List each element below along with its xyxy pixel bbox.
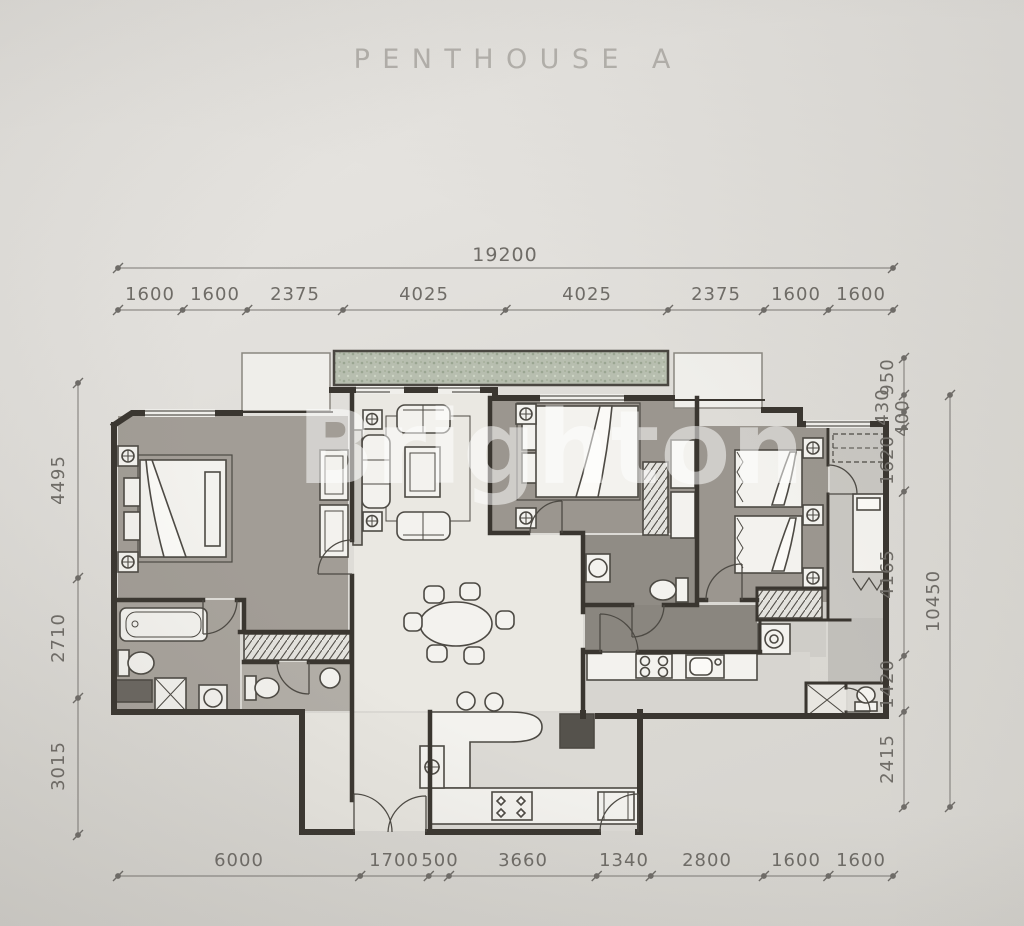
dim-label: 4025 xyxy=(399,284,449,305)
corridor-floor xyxy=(585,605,760,652)
tv-console-icon xyxy=(353,430,362,545)
twin-bed2-icon xyxy=(735,516,802,573)
window-icon xyxy=(806,420,870,428)
dim-label: 500 xyxy=(421,850,458,871)
dim-label-right-overall: 10450 xyxy=(923,570,944,632)
dim-label: 1600 xyxy=(771,284,821,305)
bedroom3-wardrobe-icon xyxy=(757,590,822,618)
bar-stool-icon xyxy=(485,693,503,711)
kitchen-counter-icon xyxy=(587,652,757,680)
dim-label: 1620 xyxy=(877,435,898,485)
toilet-icon xyxy=(650,578,688,602)
dim-label: 1600 xyxy=(771,850,821,871)
twin-bed1-icon xyxy=(735,450,802,507)
coffee-table-icon xyxy=(405,447,440,497)
window-icon xyxy=(145,409,215,417)
dim-label: 2375 xyxy=(691,284,741,305)
dim-label: 3660 xyxy=(498,850,548,871)
dining-table-icon xyxy=(420,602,492,646)
window-icon xyxy=(540,394,624,402)
dim-label: 4025 xyxy=(562,284,612,305)
dim-label: 4495 xyxy=(48,455,69,505)
dim-label: 2800 xyxy=(682,850,732,871)
dim-label-top-overall: 19200 xyxy=(472,244,537,266)
guest-toilet-icon xyxy=(245,676,279,700)
walkin-wardrobe-icon xyxy=(244,634,350,660)
bar-stool-icon xyxy=(457,692,475,710)
dim-label: 2415 xyxy=(877,734,898,784)
bedroom2-wardrobe-icon xyxy=(643,462,668,535)
bathtub-icon xyxy=(120,608,207,641)
ac-ledge-left xyxy=(242,353,330,411)
floor-plan-svg: 19200 1600 1600 2375 4025 4025 2375 1600… xyxy=(0,0,1024,926)
dim-label: 4165 xyxy=(877,549,898,599)
dim-label: 1600 xyxy=(836,850,886,871)
dim-label: 3015 xyxy=(48,741,69,791)
master-bed-icon xyxy=(124,455,232,562)
master-sink-icon xyxy=(199,685,227,711)
foyer-floor xyxy=(304,713,430,831)
dim-label: 1700 xyxy=(369,850,419,871)
dim-label: 1600 xyxy=(125,284,175,305)
floor-plan-photo: PENTHOUSE A xyxy=(0,0,1024,926)
dim-label: 1420 xyxy=(877,659,898,709)
guest-sink-icon xyxy=(320,668,340,688)
master-toilet-icon xyxy=(118,650,154,676)
washing-machine-icon xyxy=(758,624,790,654)
dim-label: 1340 xyxy=(599,850,649,871)
lower-counter-icon xyxy=(430,788,638,824)
dim-label: 2375 xyxy=(270,284,320,305)
fridge-icon xyxy=(560,714,594,748)
dim-label: 2710 xyxy=(48,613,69,663)
dim-label: 430 xyxy=(872,388,893,425)
vanity-icon xyxy=(116,680,152,702)
dim-label: 6000 xyxy=(214,850,264,871)
linen-closet-icon xyxy=(155,678,186,711)
dim-label: 1600 xyxy=(836,284,886,305)
dim-label: 400 xyxy=(892,399,913,436)
dim-label: 1600 xyxy=(190,284,240,305)
page-title: PENTHOUSE A xyxy=(0,44,1024,75)
